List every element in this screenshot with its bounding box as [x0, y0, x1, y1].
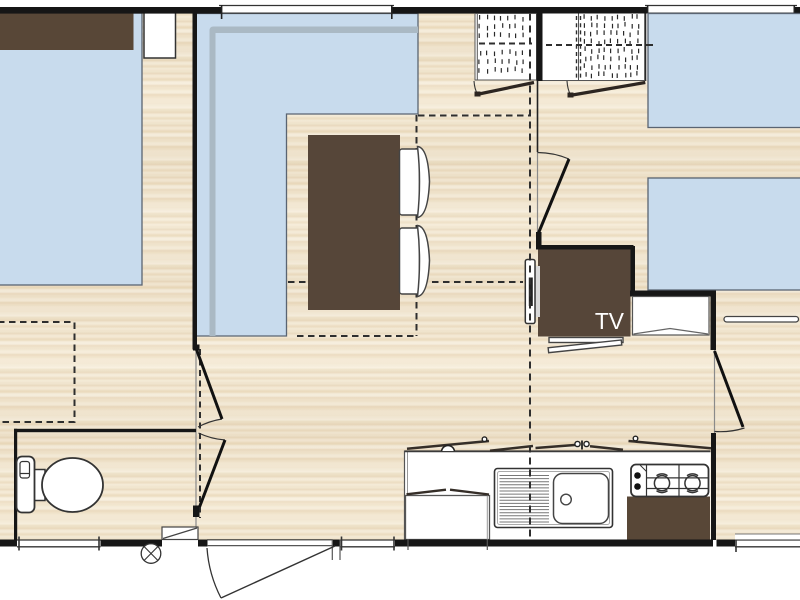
svg-text:TV: TV — [595, 308, 625, 334]
